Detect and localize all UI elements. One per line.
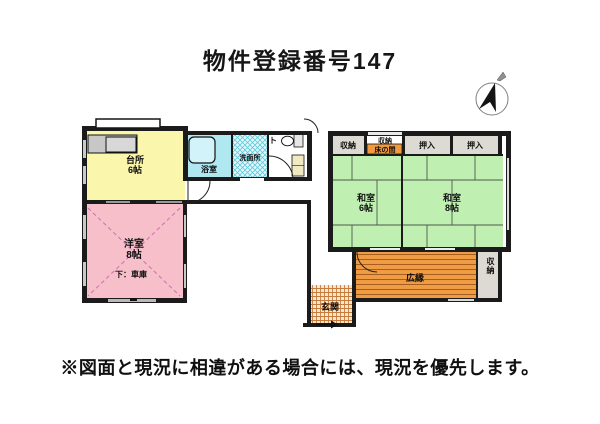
label-washitsu6-size: 6帖 bbox=[359, 202, 373, 213]
label-youshitsu-size: 8帖 bbox=[126, 248, 142, 261]
label-veranda: 広縁 bbox=[406, 272, 424, 283]
toilet-cabinet-icon bbox=[292, 155, 304, 176]
label-storage-a: 収納 bbox=[340, 140, 356, 150]
label-washitsu6: 和室 bbox=[356, 192, 375, 203]
bay-window bbox=[96, 119, 160, 128]
label-kitchen-size: 6帖 bbox=[128, 164, 142, 175]
bathtub-icon bbox=[189, 137, 215, 163]
label-toilet: ト bbox=[269, 136, 277, 145]
label-kitchen: 台所 bbox=[126, 154, 144, 165]
floor-plan-page: 物件登録番号147 bbox=[0, 0, 600, 424]
label-tokonoma: 床の間 bbox=[375, 145, 396, 154]
label-entrance: 玄関 bbox=[321, 301, 339, 312]
label-garage-note: 下：車庫 bbox=[115, 269, 147, 279]
label-youshitsu: 洋室 bbox=[124, 237, 144, 250]
label-storage-b: 収納 bbox=[378, 136, 392, 145]
label-bath: 浴室 bbox=[201, 164, 217, 174]
label-oshiire-b: 押入 bbox=[467, 140, 483, 150]
label-storage-right: 収納 bbox=[482, 257, 496, 297]
label-washitsu8-size: 8帖 bbox=[445, 202, 459, 213]
label-oshiire-a: 押入 bbox=[419, 140, 435, 150]
disclaimer-note: ※図面と現況に相違がある場合には、現況を優先します。 bbox=[0, 354, 600, 380]
compass-north-icon bbox=[476, 72, 508, 115]
label-washitsu8: 和室 bbox=[442, 192, 461, 203]
label-washroom: 洗面所 bbox=[240, 153, 261, 162]
